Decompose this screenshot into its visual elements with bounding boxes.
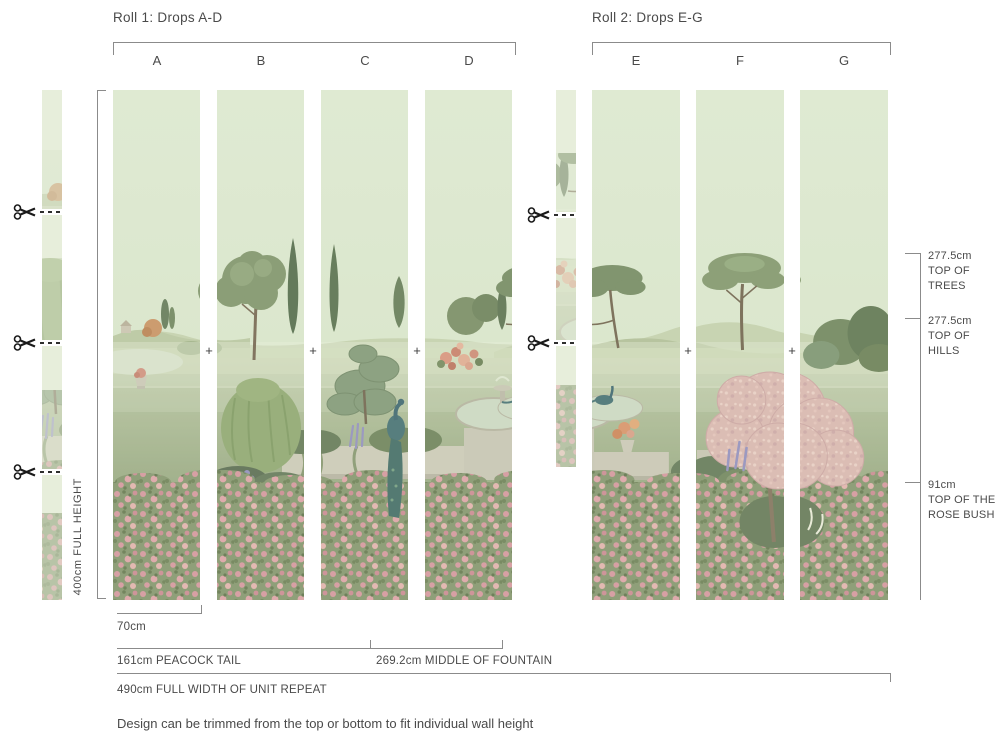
measure-value: 161cm [117,655,153,667]
drop-label-a: A [145,53,169,68]
alignment-mark: + [203,343,215,358]
panel-drop-e [592,90,680,600]
annotation-value: 277.5cm [928,249,1000,263]
cut-line [554,340,578,346]
trim-note: Design can be trimmed from the top or bo… [117,716,533,731]
drop-label-d: D [457,53,481,68]
wallpaper-hanging-diagram: Roll 1: Drops A-D Roll 2: Drops E-G A B … [0,0,1000,743]
offcut-fragment [556,385,576,467]
offcut-fragment [556,153,576,215]
drop-label-g: G [832,53,856,68]
drop-label-c: C [353,53,377,68]
measure-text: MIDDLE OF FOUNTAIN [425,655,552,667]
annotation-top-of-hills: 277.5cm TOP OF HILLS [928,314,1000,358]
panel-drop-c [321,90,408,600]
cut-line [554,212,578,218]
alignment-mark: + [307,343,319,358]
annotation-top-of-trees: 277.5cm TOP OF TREES [928,249,1000,293]
annotation-top-of-rose-bush: 91cm TOP OF THE ROSE BUSH [928,478,1000,522]
panel-drop-d [425,90,512,600]
tick-top-of-trees [905,253,920,254]
scissors-icon [13,462,37,482]
annotation-label: TOP OF TREES [928,264,1000,293]
offcut-fragment [42,390,62,472]
annotation-value: 277.5cm [928,314,1000,328]
annotation-label: TOP OF THE ROSE BUSH [928,493,1000,522]
measure-label-70cm: 70cm [117,621,146,633]
scissors-icon [527,205,551,225]
offcut-strip-middle [556,90,576,467]
roll-1-width-bracket [113,42,516,55]
measure-value: 70cm [117,621,146,633]
panel-drop-g [800,90,888,600]
roll-1-title: Roll 1: Drops A-D [113,10,222,25]
offcut-fragment [556,258,576,343]
full-height-label: 400cm FULL HEIGHT [72,478,84,595]
panel-drop-f [696,90,784,600]
scissors-icon [13,333,37,353]
offcut-strip-left [42,90,62,600]
alignment-mark: + [786,343,798,358]
measure-text: PEACOCK TAIL [156,655,241,667]
panel-drop-b [217,90,304,600]
scissors-icon [527,333,551,353]
cut-line [40,209,64,215]
measure-line-fountain [370,640,503,649]
right-ruler-line [920,253,921,600]
offcut-fragment [42,513,62,600]
cut-line [40,469,64,475]
measure-label-fountain: 269.2cm MIDDLE OF FOUNTAIN [376,655,552,667]
measure-text: FULL WIDTH OF UNIT REPEAT [156,684,327,696]
measure-label-peacock-tail: 161cm PEACOCK TAIL [117,655,241,667]
measure-line-peacock-tail [117,640,371,649]
panel-drop-a [113,90,200,600]
tick-top-of-hills [905,318,920,319]
alignment-mark: + [682,343,694,358]
measure-line-70cm [117,605,202,614]
measure-value: 269.2cm [376,655,422,667]
drop-label-b: B [249,53,273,68]
annotation-value: 91cm [928,478,1000,492]
scissors-icon [13,202,37,222]
roll-2-title: Roll 2: Drops E-G [592,10,703,25]
measure-value: 490cm [117,684,153,696]
offcut-fragment [42,258,62,343]
tick-top-of-rose-bush [905,482,920,483]
measure-label-unit-repeat: 490cm FULL WIDTH OF UNIT REPEAT [117,684,327,696]
drop-label-e: E [624,53,648,68]
cut-line [40,340,64,346]
drop-label-f: F [728,53,752,68]
full-height-bracket [97,90,106,599]
alignment-mark: + [411,343,423,358]
full-height-label-wrap: 400cm FULL HEIGHT [72,90,84,595]
measure-line-unit-repeat [117,673,891,682]
annotation-label: TOP OF HILLS [928,329,1000,358]
offcut-fragment [42,150,62,212]
